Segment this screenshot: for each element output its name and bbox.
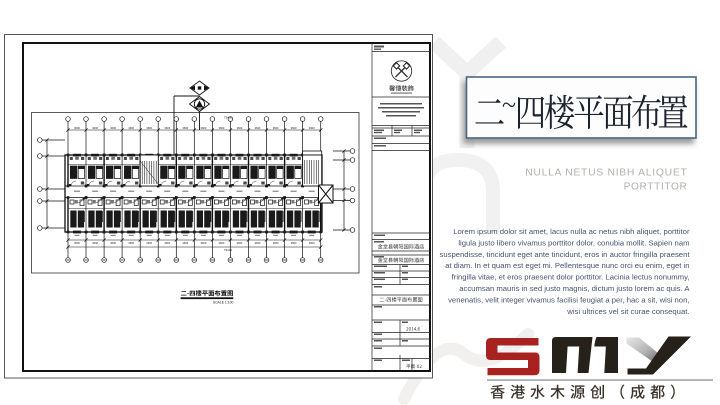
svg-text:3600: 3600 bbox=[164, 241, 170, 245]
svg-text:PORTTITOR: PORTTITOR bbox=[624, 182, 688, 193]
svg-text:3600: 3600 bbox=[74, 241, 80, 245]
svg-text:suspendisse, tincidunt eget an: suspendisse, tincidunt eget ante tincidu… bbox=[440, 250, 691, 259]
svg-text:3600: 3600 bbox=[182, 241, 188, 245]
svg-text:3600: 3600 bbox=[219, 241, 225, 245]
svg-text:3600: 3600 bbox=[201, 241, 207, 245]
svg-text:3600: 3600 bbox=[255, 126, 261, 130]
svg-text:accumsan mauris in sed justo m: accumsan mauris in sed justo magnis, dic… bbox=[459, 284, 690, 293]
svg-text:3600: 3600 bbox=[74, 126, 80, 130]
svg-text:3600: 3600 bbox=[182, 126, 188, 130]
svg-text:3600: 3600 bbox=[255, 241, 261, 245]
svg-text:3600: 3600 bbox=[110, 241, 116, 245]
svg-text:SCALE 1:100: SCALE 1:100 bbox=[213, 301, 234, 305]
svg-text:wisi ultrices vel sit curae co: wisi ultrices vel sit curae consequat. bbox=[566, 307, 689, 316]
svg-text:NULLA NETUS NIBH ALIQUET: NULLA NETUS NIBH ALIQUET bbox=[525, 168, 687, 179]
svg-text:3600: 3600 bbox=[92, 241, 98, 245]
svg-text:venenatis, velit integer vivam: venenatis, velit integer vivamus facilis… bbox=[448, 295, 689, 304]
svg-text:3600: 3600 bbox=[146, 241, 152, 245]
svg-text:3600: 3600 bbox=[309, 241, 315, 245]
svg-text:Lorem ipsum dolor sit amet, la: Lorem ipsum dolor sit amet, lacus nulla … bbox=[453, 227, 690, 236]
svg-text:3600: 3600 bbox=[219, 126, 225, 130]
svg-text:at diam. In et quam est eget m: at diam. In et quam est eget mi. Pellent… bbox=[445, 261, 689, 270]
svg-text:3600: 3600 bbox=[291, 241, 297, 245]
svg-text:73400: 73400 bbox=[224, 116, 233, 120]
svg-text:3600: 3600 bbox=[201, 126, 207, 130]
svg-text:3600: 3600 bbox=[309, 126, 315, 130]
svg-text:3600: 3600 bbox=[291, 126, 297, 130]
svg-text:3600: 3600 bbox=[92, 126, 98, 130]
svg-text:fringilla vitae, et eros praes: fringilla vitae, et eros praesent dolor … bbox=[452, 273, 690, 282]
svg-text:3600: 3600 bbox=[273, 241, 279, 245]
svg-text:3600: 3600 bbox=[128, 241, 134, 245]
svg-text:73400: 73400 bbox=[224, 248, 233, 252]
svg-text:3600: 3600 bbox=[146, 126, 152, 130]
svg-text:3600: 3600 bbox=[273, 126, 279, 130]
svg-text:3600: 3600 bbox=[237, 126, 243, 130]
svg-text:3600: 3600 bbox=[128, 126, 134, 130]
svg-text:ligula justo libero vivamus po: ligula justo libero vivamus porttitor do… bbox=[458, 238, 689, 247]
svg-text:3600: 3600 bbox=[237, 241, 243, 245]
svg-text:3600: 3600 bbox=[110, 126, 116, 130]
svg-text:3600: 3600 bbox=[164, 126, 170, 130]
